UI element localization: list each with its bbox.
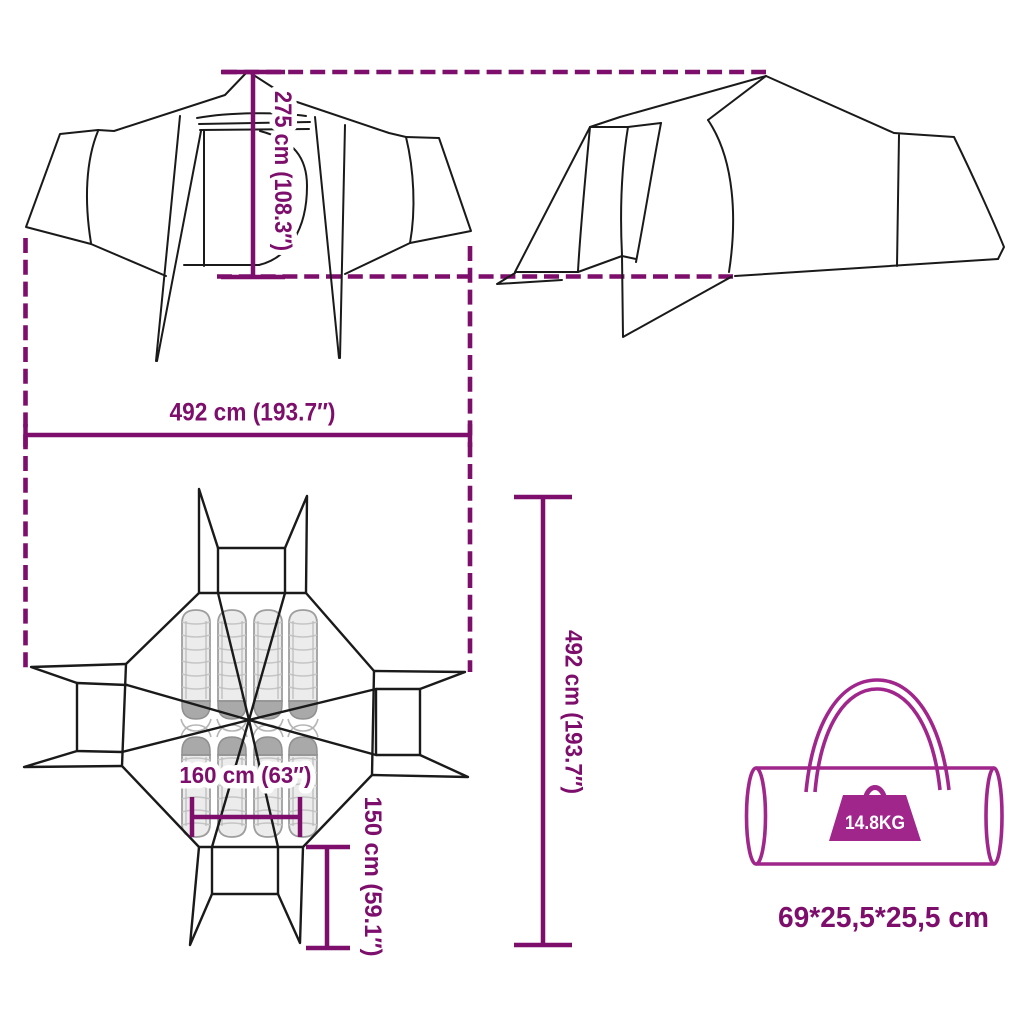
svg-text:492 cm (193.7″): 492 cm (193.7″) xyxy=(170,399,336,427)
svg-text:492 cm (193.7″): 492 cm (193.7″) xyxy=(560,630,587,794)
svg-text:150 cm (59.1″): 150 cm (59.1″) xyxy=(359,797,386,957)
svg-text:160 cm (63″): 160 cm (63″) xyxy=(179,762,311,788)
svg-text:275 cm (108.3″): 275 cm (108.3″) xyxy=(269,91,296,251)
svg-text:14.8KG: 14.8KG xyxy=(845,813,905,834)
svg-text:69*25,5*25,5 cm: 69*25,5*25,5 cm xyxy=(778,902,989,934)
